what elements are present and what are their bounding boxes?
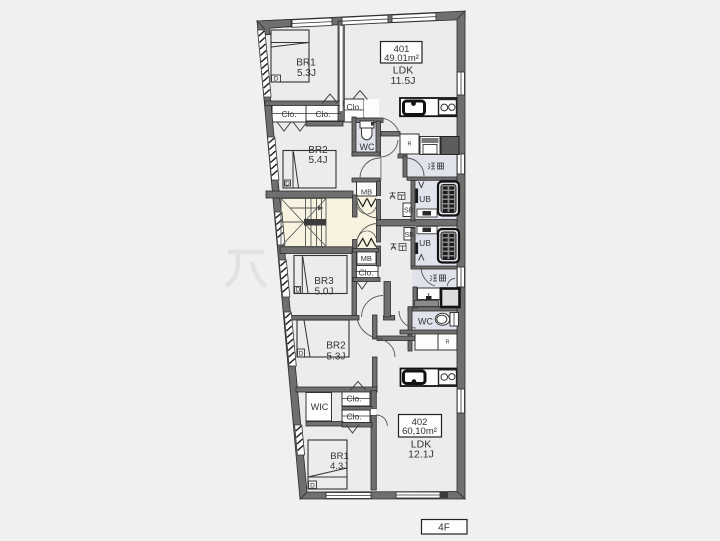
- svg-text:D: D: [296, 287, 301, 294]
- svg-text:49.01m²: 49.01m²: [384, 53, 419, 64]
- svg-text:D: D: [299, 351, 304, 358]
- svg-text:Clo.: Clo.: [281, 109, 296, 119]
- svg-text:R: R: [446, 340, 450, 346]
- svg-text:Clo.: Clo.: [346, 412, 361, 422]
- svg-text:5.4J: 5.4J: [309, 155, 328, 166]
- svg-text:Clo.: Clo.: [315, 109, 330, 119]
- svg-text:60,10m²: 60,10m²: [402, 426, 437, 437]
- svg-text:R: R: [408, 142, 412, 148]
- svg-text:SB: SB: [404, 208, 414, 215]
- svg-text:WC: WC: [418, 317, 433, 327]
- svg-text:4.3J: 4.3J: [330, 461, 348, 472]
- svg-text:UB: UB: [419, 238, 431, 248]
- svg-text:D: D: [310, 483, 315, 490]
- svg-text:5.3J: 5.3J: [327, 352, 346, 363]
- svg-text:MB: MB: [361, 254, 372, 263]
- svg-text:BR2: BR2: [326, 341, 346, 352]
- svg-text:BR3: BR3: [314, 276, 334, 287]
- svg-text:5.0J: 5.0J: [315, 287, 334, 298]
- svg-text:11.5J: 11.5J: [391, 75, 416, 87]
- svg-text:Clo.: Clo.: [346, 394, 361, 404]
- svg-text:BR1: BR1: [296, 58, 316, 69]
- svg-text:WIC: WIC: [311, 402, 329, 412]
- svg-text:D: D: [274, 76, 279, 83]
- svg-text:MB: MB: [361, 188, 372, 197]
- svg-text:D: D: [285, 180, 290, 187]
- svg-text:Clo.: Clo.: [346, 102, 361, 112]
- svg-text:SB: SB: [405, 232, 415, 239]
- svg-text:12.1J: 12.1J: [408, 449, 434, 461]
- svg-text:4F: 4F: [438, 523, 450, 534]
- svg-text:5.3J: 5.3J: [297, 68, 316, 79]
- svg-text:UB: UB: [419, 194, 431, 204]
- svg-text:Clo.: Clo.: [358, 268, 373, 278]
- svg-text:WC: WC: [360, 142, 375, 152]
